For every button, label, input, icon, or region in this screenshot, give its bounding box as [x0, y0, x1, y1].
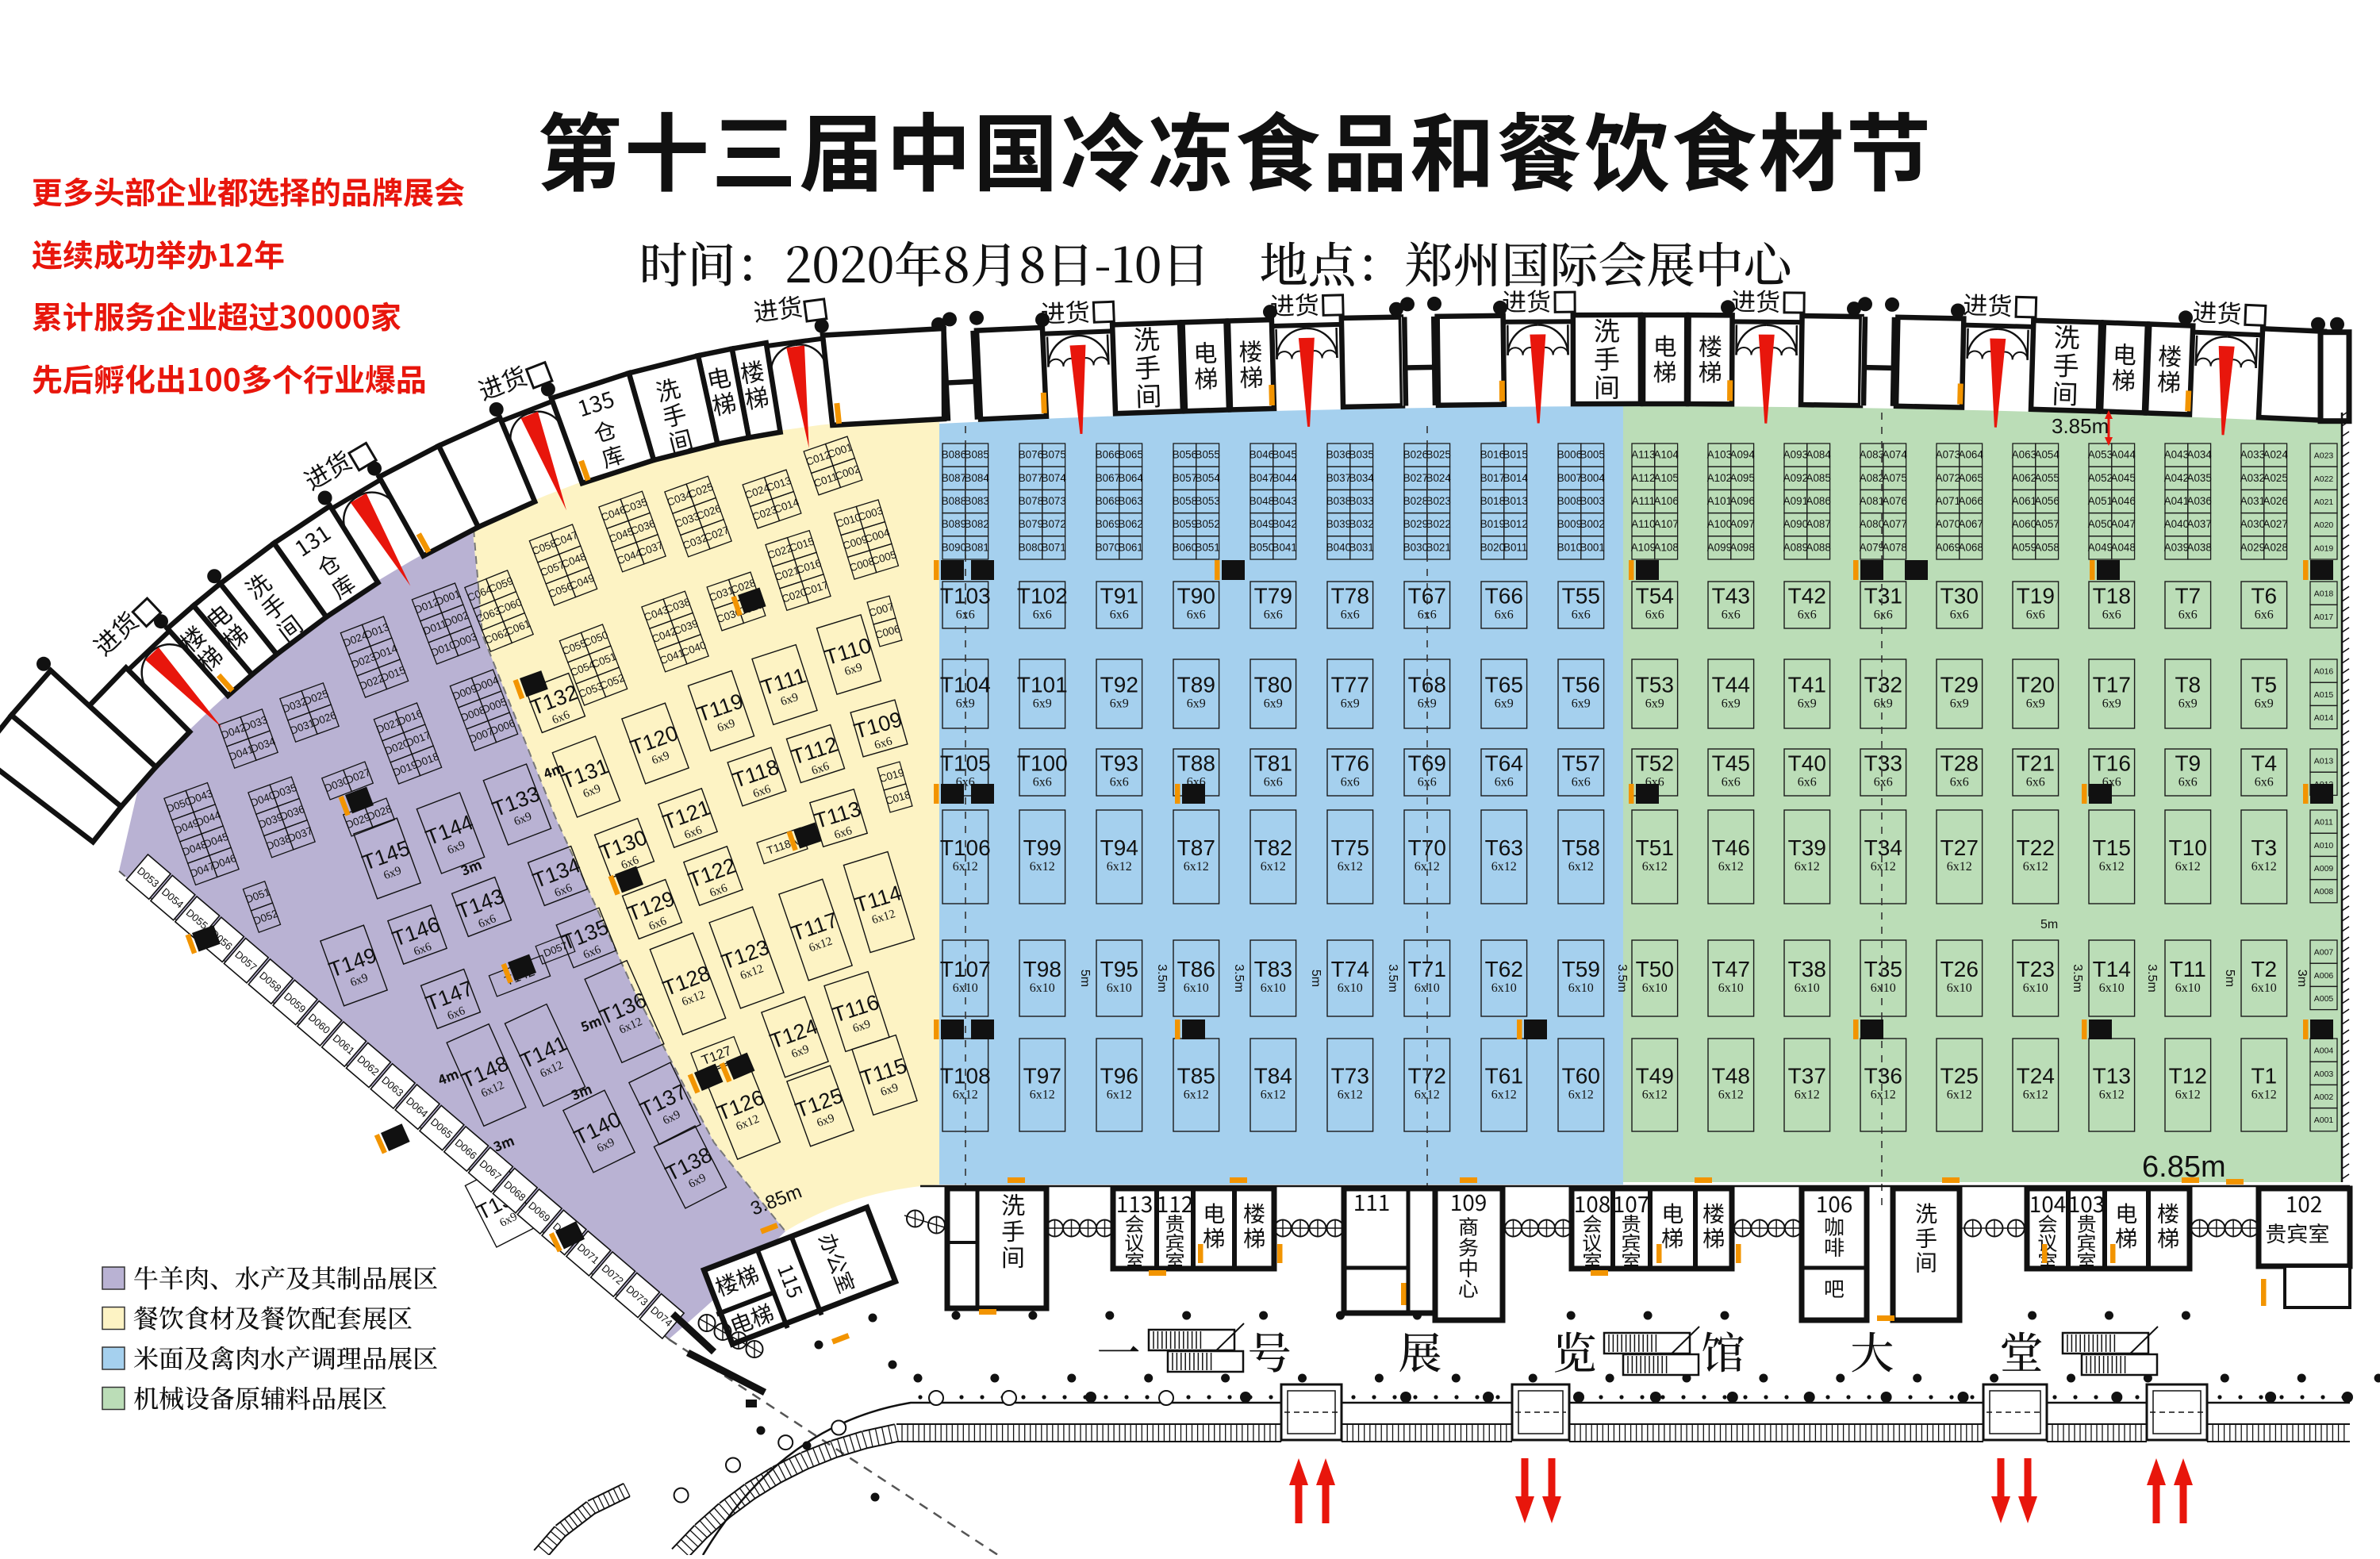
- svg-text:A002: A002: [2314, 1092, 2334, 1102]
- svg-text:T80: T80: [1254, 673, 1292, 697]
- svg-text:A064: A064: [1959, 449, 1984, 461]
- svg-text:B009: B009: [1557, 518, 1582, 530]
- svg-text:T27: T27: [1940, 835, 1979, 860]
- svg-text:T12: T12: [2169, 1064, 2207, 1089]
- svg-text:T77: T77: [1331, 673, 1369, 697]
- svg-text:A077: A077: [1883, 518, 1907, 530]
- svg-text:A087: A087: [1806, 518, 1831, 530]
- svg-text:B017: B017: [1480, 472, 1505, 484]
- svg-text:T40: T40: [1788, 751, 1826, 776]
- svg-text:6x9: 6x9: [2178, 697, 2198, 711]
- svg-text:B070: B070: [1096, 541, 1120, 553]
- svg-text:A041: A041: [2164, 495, 2189, 507]
- svg-text:T59: T59: [1562, 957, 1600, 981]
- svg-text:T85: T85: [1177, 1064, 1215, 1089]
- svg-text:A067: A067: [1959, 518, 1983, 530]
- svg-text:A019: A019: [2314, 543, 2334, 553]
- svg-text:A026: A026: [2263, 495, 2288, 507]
- svg-text:A035: A035: [2187, 472, 2212, 484]
- svg-text:6x10: 6x10: [1947, 981, 1972, 995]
- svg-text:6x6: 6x6: [1722, 776, 1741, 789]
- svg-text:6x10: 6x10: [1871, 981, 1896, 995]
- svg-text:A015: A015: [2314, 690, 2334, 700]
- svg-text:B036: B036: [1326, 449, 1351, 461]
- svg-text:B047: B047: [1249, 472, 1274, 484]
- svg-text:A100: A100: [1707, 518, 1732, 530]
- svg-text:6x10: 6x10: [1030, 981, 1055, 995]
- svg-text:B021: B021: [1426, 541, 1451, 553]
- svg-text:梯: 梯: [1699, 353, 1722, 388]
- svg-text:A025: A025: [2263, 472, 2288, 484]
- svg-text:T84: T84: [1254, 1064, 1292, 1089]
- svg-text:6x9: 6x9: [1495, 697, 1514, 711]
- svg-text:T95: T95: [1100, 957, 1138, 981]
- svg-text:3m: 3m: [2295, 970, 2309, 987]
- svg-text:连续成功举办12年: 连续成功举办12年: [32, 232, 285, 276]
- svg-text:6x6: 6x6: [1187, 609, 1206, 622]
- svg-text:6x12: 6x12: [1947, 860, 1972, 874]
- svg-text:6x10: 6x10: [2251, 981, 2277, 995]
- svg-text:6x10: 6x10: [2023, 981, 2048, 995]
- svg-text:6x12: 6x12: [1107, 860, 1132, 874]
- svg-text:T47: T47: [1712, 957, 1750, 981]
- svg-text:A070: A070: [1936, 518, 1960, 530]
- svg-text:T5: T5: [2251, 673, 2277, 697]
- svg-text:B071: B071: [1042, 541, 1066, 553]
- svg-text:间: 间: [1001, 1238, 1025, 1273]
- svg-text:A023: A023: [2314, 451, 2334, 461]
- svg-text:第十三届中国冷冻食品和餐饮食材节: 第十三届中国冷冻食品和餐饮食材节: [537, 86, 1933, 209]
- svg-text:A036: A036: [2187, 495, 2212, 507]
- svg-text:5m: 5m: [2223, 970, 2236, 987]
- svg-text:A058: A058: [2035, 541, 2059, 553]
- svg-text:餐饮食材及餐饮配套展区: 餐饮食材及餐饮配套展区: [133, 1300, 413, 1336]
- svg-text:6x6: 6x6: [2255, 609, 2274, 622]
- svg-text:B030: B030: [1403, 541, 1428, 553]
- svg-text:B068: B068: [1096, 495, 1120, 507]
- svg-text:A001: A001: [2314, 1115, 2334, 1125]
- svg-text:A053: A053: [2088, 449, 2113, 461]
- svg-text:T17: T17: [2093, 673, 2131, 697]
- svg-text:A065: A065: [1959, 472, 1983, 484]
- svg-text:6x9: 6x9: [1341, 697, 1360, 711]
- svg-text:T86: T86: [1177, 957, 1215, 981]
- svg-text:A007: A007: [2314, 948, 2334, 958]
- svg-text:T65: T65: [1485, 673, 1523, 697]
- svg-text:A005: A005: [2314, 994, 2334, 1004]
- svg-text:A055: A055: [2035, 472, 2059, 484]
- svg-text:5m: 5m: [2040, 918, 2058, 931]
- svg-text:T94: T94: [1100, 835, 1138, 860]
- svg-text:梯: 梯: [2111, 361, 2136, 397]
- svg-text:A018: A018: [2314, 589, 2334, 599]
- svg-text:B063: B063: [1119, 495, 1143, 507]
- svg-text:6x12: 6x12: [1568, 860, 1594, 874]
- svg-text:B031: B031: [1349, 541, 1374, 553]
- svg-text:A109: A109: [1631, 541, 1656, 553]
- svg-text:5m: 5m: [1078, 970, 1092, 987]
- svg-text:T35: T35: [1864, 957, 1902, 981]
- svg-text:T23: T23: [2017, 957, 2055, 981]
- svg-text:A011: A011: [2314, 818, 2333, 827]
- svg-text:6x6: 6x6: [1572, 609, 1591, 622]
- svg-text:间: 间: [1134, 375, 1162, 414]
- svg-text:T99: T99: [1023, 835, 1061, 860]
- svg-text:A106: A106: [1654, 495, 1679, 507]
- svg-text:6x9: 6x9: [1110, 697, 1129, 711]
- svg-text:T30: T30: [1940, 584, 1979, 609]
- svg-text:B059: B059: [1173, 518, 1197, 530]
- svg-text:T6: T6: [2251, 584, 2277, 609]
- svg-text:T8: T8: [2175, 673, 2201, 697]
- svg-text:T29: T29: [1940, 673, 1979, 697]
- svg-text:梯: 梯: [1702, 1222, 1725, 1254]
- svg-text:B007: B007: [1557, 472, 1582, 484]
- svg-text:A045: A045: [2111, 472, 2136, 484]
- svg-text:B060: B060: [1173, 541, 1197, 553]
- svg-text:6x12: 6x12: [2099, 1089, 2125, 1102]
- svg-text:6x12: 6x12: [2175, 1089, 2201, 1102]
- svg-text:A081: A081: [1860, 495, 1884, 507]
- svg-text:B034: B034: [1349, 472, 1375, 484]
- svg-text:T50: T50: [1636, 957, 1674, 981]
- svg-text:米面及禽肉水产调理品展区: 米面及禽肉水产调理品展区: [133, 1339, 438, 1376]
- svg-text:T83: T83: [1254, 957, 1292, 981]
- svg-text:B016: B016: [1480, 449, 1505, 461]
- svg-text:A034: A034: [2187, 449, 2213, 461]
- svg-text:A020: A020: [2314, 520, 2334, 530]
- svg-text:T2: T2: [2251, 957, 2277, 981]
- svg-text:A069: A069: [1936, 541, 1960, 553]
- svg-text:6x12: 6x12: [1491, 860, 1517, 874]
- svg-text:B066: B066: [1096, 449, 1120, 461]
- svg-text:T98: T98: [1023, 957, 1061, 981]
- svg-text:B014: B014: [1503, 472, 1529, 484]
- svg-text:6x6: 6x6: [1341, 776, 1360, 789]
- svg-text:A102: A102: [1707, 472, 1732, 484]
- svg-text:T102: T102: [1017, 584, 1068, 609]
- svg-text:B011: B011: [1503, 541, 1527, 553]
- svg-text:T78: T78: [1331, 584, 1369, 609]
- svg-text:B081: B081: [965, 541, 989, 553]
- svg-text:B005: B005: [1580, 449, 1605, 461]
- svg-text:B088: B088: [942, 495, 966, 507]
- svg-text:A016: A016: [2314, 667, 2334, 677]
- svg-text:3.5m: 3.5m: [2071, 964, 2084, 993]
- svg-text:一: 一: [1096, 1319, 1140, 1381]
- svg-text:6x10: 6x10: [1642, 981, 1668, 995]
- svg-text:6x9: 6x9: [1264, 697, 1283, 711]
- svg-text:A063: A063: [2012, 449, 2036, 461]
- svg-text:大: 大: [1850, 1319, 1894, 1381]
- svg-text:A101: A101: [1707, 495, 1732, 507]
- svg-text:6x12: 6x12: [2251, 860, 2277, 874]
- svg-text:A017: A017: [2314, 612, 2334, 622]
- svg-text:6x6: 6x6: [1110, 609, 1129, 622]
- svg-text:A060: A060: [2012, 518, 2036, 530]
- svg-text:T33: T33: [1864, 751, 1902, 776]
- svg-text:B023: B023: [1426, 495, 1451, 507]
- svg-text:B032: B032: [1349, 518, 1374, 530]
- svg-text:A112: A112: [1631, 472, 1655, 484]
- svg-text:A085: A085: [1806, 472, 1831, 484]
- svg-text:A092: A092: [1783, 472, 1808, 484]
- svg-text:T4: T4: [2251, 751, 2277, 776]
- svg-text:A097: A097: [1730, 518, 1755, 530]
- svg-text:6x9: 6x9: [2102, 697, 2121, 711]
- svg-text:6x6: 6x6: [1264, 776, 1283, 789]
- svg-text:A052: A052: [2088, 472, 2113, 484]
- svg-text:6x12: 6x12: [1030, 1089, 1055, 1102]
- svg-text:6x10: 6x10: [1491, 981, 1517, 995]
- svg-text:A088: A088: [1806, 541, 1831, 553]
- svg-text:6x6: 6x6: [1950, 776, 1969, 789]
- svg-text:B033: B033: [1349, 495, 1374, 507]
- svg-text:B053: B053: [1196, 495, 1220, 507]
- svg-text:A066: A066: [1959, 495, 1983, 507]
- svg-text:B072: B072: [1042, 518, 1066, 530]
- svg-text:6x9: 6x9: [1798, 697, 1817, 711]
- svg-text:T54: T54: [1636, 584, 1674, 609]
- svg-text:T46: T46: [1712, 835, 1750, 860]
- svg-text:6x12: 6x12: [1107, 1089, 1132, 1102]
- svg-text:6x6: 6x6: [2178, 776, 2198, 789]
- svg-text:B065: B065: [1119, 449, 1143, 461]
- svg-text:B013: B013: [1503, 495, 1528, 507]
- svg-text:6x10: 6x10: [1261, 981, 1286, 995]
- svg-text:B015: B015: [1503, 449, 1528, 461]
- svg-text:A079: A079: [1860, 541, 1884, 553]
- svg-text:B050: B050: [1249, 541, 1274, 553]
- svg-text:5m: 5m: [1309, 970, 1322, 987]
- svg-text:A095: A095: [1730, 472, 1755, 484]
- svg-text:T39: T39: [1788, 835, 1826, 860]
- svg-text:A111: A111: [1632, 495, 1655, 507]
- svg-text:A108: A108: [1654, 541, 1679, 553]
- svg-text:A074: A074: [1883, 449, 1908, 461]
- svg-text:6x6: 6x6: [2178, 609, 2198, 622]
- svg-text:B078: B078: [1019, 495, 1043, 507]
- svg-text:梯: 梯: [1193, 359, 1218, 395]
- svg-text:T100: T100: [1017, 751, 1068, 776]
- svg-text:102: 102: [2286, 1188, 2323, 1219]
- svg-text:T93: T93: [1100, 751, 1138, 776]
- svg-text:6x9: 6x9: [1645, 697, 1664, 711]
- svg-text:B024: B024: [1426, 472, 1452, 484]
- svg-text:T34: T34: [1864, 835, 1902, 860]
- svg-text:6x6: 6x6: [1798, 776, 1817, 789]
- svg-text:A080: A080: [1860, 518, 1884, 530]
- svg-text:B048: B048: [1249, 495, 1274, 507]
- svg-text:B012: B012: [1503, 518, 1528, 530]
- svg-text:A091: A091: [1783, 495, 1808, 507]
- svg-text:B003: B003: [1580, 495, 1605, 507]
- svg-text:6x12: 6x12: [1030, 860, 1055, 874]
- svg-text:A051: A051: [2088, 495, 2113, 507]
- svg-text:B020: B020: [1480, 541, 1505, 553]
- svg-text:6x10: 6x10: [1568, 981, 1594, 995]
- svg-text:6x6: 6x6: [1110, 776, 1129, 789]
- svg-text:T60: T60: [1562, 1064, 1600, 1089]
- svg-text:A093: A093: [1783, 449, 1808, 461]
- svg-text:6x12: 6x12: [2099, 860, 2125, 874]
- svg-text:B038: B038: [1326, 495, 1351, 507]
- svg-text:3.5m: 3.5m: [2145, 964, 2159, 993]
- svg-text:B039: B039: [1326, 518, 1351, 530]
- svg-text:T37: T37: [1788, 1064, 1826, 1089]
- svg-text:6x9: 6x9: [2255, 697, 2274, 711]
- svg-text:B073: B073: [1042, 495, 1066, 507]
- svg-text:T90: T90: [1177, 584, 1215, 609]
- svg-text:A046: A046: [2111, 495, 2136, 507]
- svg-text:6x12: 6x12: [1184, 1089, 1209, 1102]
- svg-text:A049: A049: [2088, 541, 2113, 553]
- svg-text:T91: T91: [1100, 584, 1138, 609]
- svg-text:室: 室: [1165, 1247, 1184, 1276]
- svg-text:间: 间: [1594, 367, 1620, 405]
- svg-text:T52: T52: [1636, 751, 1674, 776]
- svg-text:T81: T81: [1254, 751, 1292, 776]
- svg-text:A032: A032: [2240, 472, 2265, 484]
- svg-text:6x6: 6x6: [1341, 609, 1360, 622]
- svg-text:梯: 梯: [2156, 363, 2182, 398]
- svg-text:梯: 梯: [1661, 1222, 1683, 1254]
- svg-text:A014: A014: [2314, 713, 2334, 723]
- svg-text:6x12: 6x12: [2251, 1089, 2277, 1102]
- svg-text:6x6: 6x6: [1264, 609, 1283, 622]
- svg-text:B029: B029: [1403, 518, 1428, 530]
- svg-text:B089: B089: [942, 518, 966, 530]
- svg-text:6x12: 6x12: [1871, 1089, 1896, 1102]
- svg-text:梯: 梯: [1243, 1222, 1265, 1254]
- svg-text:T16: T16: [2093, 751, 2131, 776]
- svg-text:6x10: 6x10: [1718, 981, 1744, 995]
- svg-text:先后孵化出100多个行业爆品: 先后孵化出100多个行业爆品: [32, 356, 427, 401]
- svg-text:B018: B018: [1480, 495, 1505, 507]
- svg-text:T92: T92: [1100, 673, 1138, 697]
- svg-text:B076: B076: [1019, 449, 1043, 461]
- svg-text:间: 间: [2052, 373, 2079, 412]
- svg-text:室: 室: [1124, 1247, 1144, 1276]
- svg-text:6x6: 6x6: [1950, 609, 1969, 622]
- svg-text:A054: A054: [2035, 449, 2060, 461]
- svg-text:T22: T22: [2017, 835, 2055, 860]
- svg-text:6x12: 6x12: [1184, 860, 1209, 874]
- svg-text:B067: B067: [1096, 472, 1120, 484]
- svg-text:T44: T44: [1712, 673, 1750, 697]
- svg-text:T9: T9: [2175, 751, 2201, 776]
- svg-text:111: 111: [1353, 1186, 1391, 1218]
- svg-text:T10: T10: [2169, 835, 2207, 860]
- svg-text:T76: T76: [1331, 751, 1369, 776]
- svg-text:T31: T31: [1864, 584, 1902, 609]
- svg-text:A072: A072: [1936, 472, 1960, 484]
- svg-text:A075: A075: [1883, 472, 1907, 484]
- svg-text:A086: A086: [1806, 495, 1831, 507]
- svg-text:T97: T97: [1023, 1064, 1061, 1089]
- svg-text:6x12: 6x12: [2175, 860, 2201, 874]
- svg-text:B035: B035: [1349, 449, 1374, 461]
- svg-text:T73: T73: [1331, 1064, 1369, 1089]
- svg-text:6x12: 6x12: [2023, 1089, 2048, 1102]
- svg-text:B062: B062: [1119, 518, 1143, 530]
- svg-text:T21: T21: [2017, 751, 2055, 776]
- svg-text:B080: B080: [1019, 541, 1043, 553]
- svg-text:6x9: 6x9: [1950, 697, 1969, 711]
- svg-text:6x10: 6x10: [1184, 981, 1209, 995]
- svg-text:B055: B055: [1196, 449, 1220, 461]
- svg-text:A010: A010: [2314, 841, 2334, 851]
- svg-text:室: 室: [2037, 1247, 2057, 1276]
- svg-text:A042: A042: [2164, 472, 2189, 484]
- svg-text:梯: 梯: [1239, 358, 1264, 394]
- svg-text:B058: B058: [1173, 495, 1197, 507]
- svg-text:6x12: 6x12: [1871, 860, 1896, 874]
- svg-text:6x6: 6x6: [1874, 609, 1893, 622]
- svg-text:T74: T74: [1331, 957, 1369, 981]
- svg-text:A061: A061: [2012, 495, 2036, 507]
- svg-text:A029: A029: [2240, 541, 2265, 553]
- svg-text:B084: B084: [965, 472, 990, 484]
- svg-text:机械设备原辅料品展区: 机械设备原辅料品展区: [133, 1380, 387, 1416]
- svg-text:6x12: 6x12: [1642, 860, 1668, 874]
- svg-text:B052: B052: [1196, 518, 1220, 530]
- svg-text:梯: 梯: [2157, 1222, 2179, 1254]
- svg-text:B085: B085: [965, 449, 989, 461]
- svg-text:T56: T56: [1562, 673, 1600, 697]
- svg-text:B045: B045: [1273, 449, 1297, 461]
- svg-text:贵宾室: 贵宾室: [2266, 1217, 2330, 1248]
- svg-text:B044: B044: [1273, 472, 1298, 484]
- svg-text:梯: 梯: [1203, 1222, 1225, 1254]
- svg-text:A037: A037: [2187, 518, 2212, 530]
- svg-text:A033: A033: [2240, 449, 2265, 461]
- svg-text:A094: A094: [1730, 449, 1756, 461]
- svg-text:A107: A107: [1654, 518, 1679, 530]
- svg-text:6x12: 6x12: [1261, 860, 1286, 874]
- svg-text:A028: A028: [2263, 541, 2288, 553]
- svg-text:A050: A050: [2088, 518, 2113, 530]
- svg-text:6x6: 6x6: [2255, 776, 2274, 789]
- svg-text:T14: T14: [2093, 957, 2131, 981]
- svg-text:牛羊肉、水产及其制品展区: 牛羊肉、水产及其制品展区: [133, 1259, 438, 1296]
- svg-text:室: 室: [2076, 1247, 2096, 1276]
- svg-text:T55: T55: [1562, 584, 1600, 609]
- svg-text:A076: A076: [1883, 495, 1907, 507]
- svg-text:A071: A071: [1936, 495, 1960, 507]
- svg-text:B082: B082: [965, 518, 989, 530]
- svg-text:T3: T3: [2251, 835, 2277, 860]
- svg-text:T63: T63: [1485, 835, 1523, 860]
- svg-text:T48: T48: [1712, 1064, 1750, 1089]
- svg-text:B057: B057: [1173, 472, 1197, 484]
- svg-text:B056: B056: [1173, 449, 1197, 461]
- svg-text:B086: B086: [942, 449, 966, 461]
- svg-text:T87: T87: [1177, 835, 1215, 860]
- svg-text:B077: B077: [1019, 472, 1043, 484]
- svg-text:T19: T19: [2017, 584, 2055, 609]
- svg-text:T61: T61: [1485, 1064, 1523, 1089]
- svg-text:B069: B069: [1096, 518, 1120, 530]
- svg-text:览: 览: [1553, 1319, 1596, 1381]
- svg-text:A031: A031: [2240, 495, 2265, 507]
- svg-text:A103: A103: [1707, 449, 1732, 461]
- svg-text:梯: 梯: [1653, 353, 1677, 388]
- svg-text:6x12: 6x12: [1795, 860, 1820, 874]
- svg-text:B090: B090: [942, 541, 966, 553]
- svg-text:A030: A030: [2240, 518, 2265, 530]
- svg-text:B083: B083: [965, 495, 989, 507]
